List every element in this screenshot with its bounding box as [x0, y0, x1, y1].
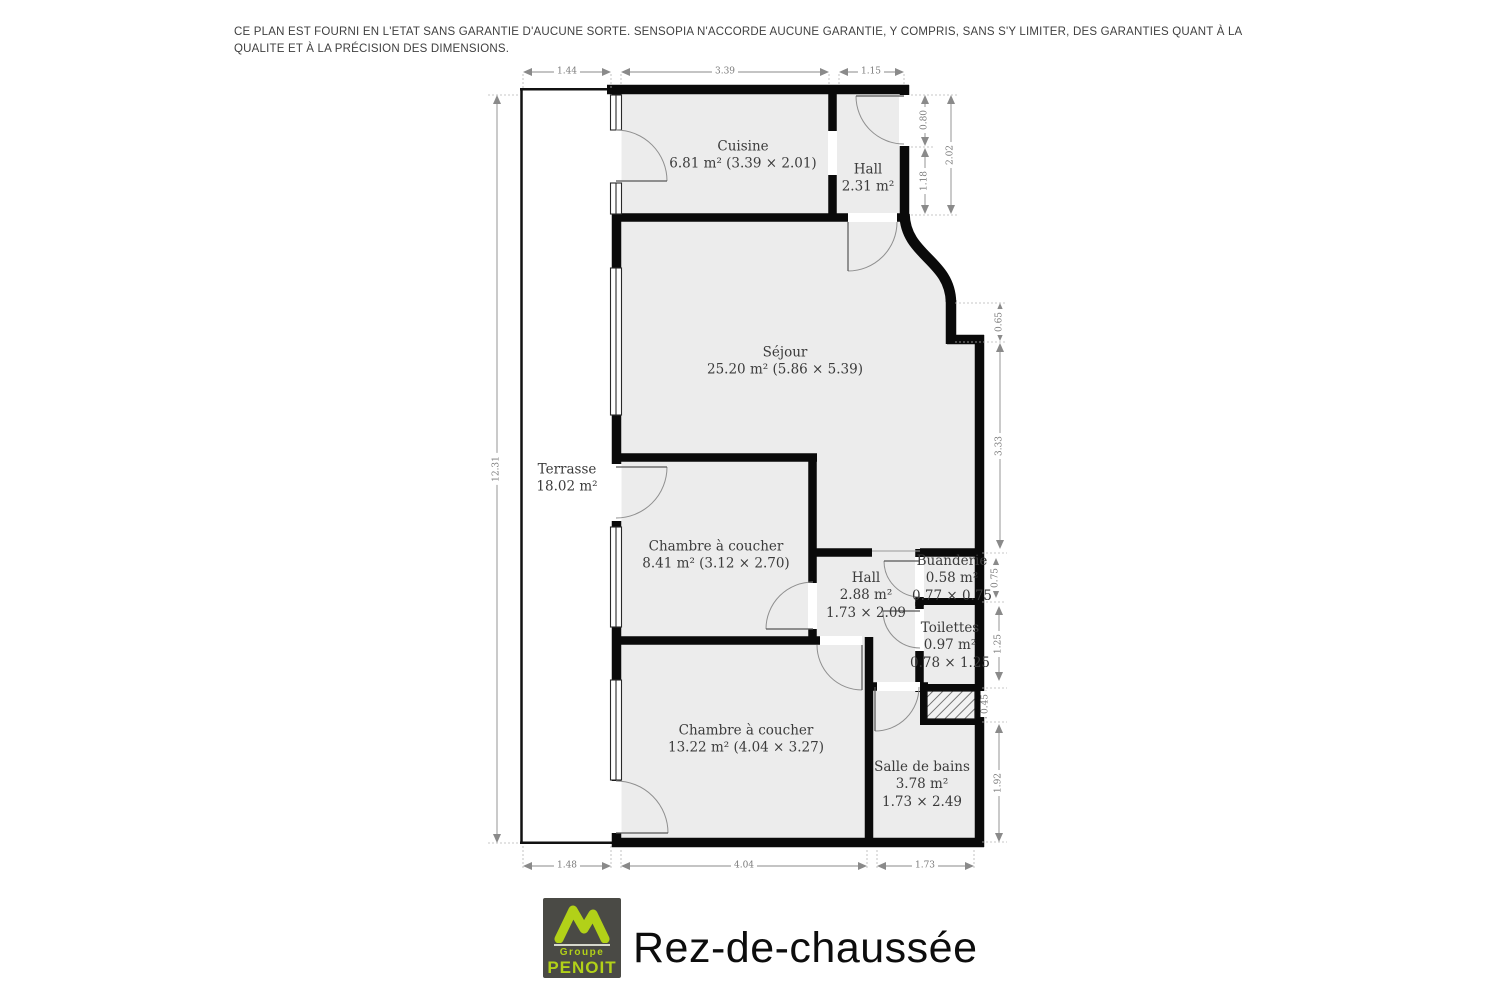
logo-group-text: Groupe — [560, 947, 605, 958]
room-name: Chambre à coucher — [668, 723, 824, 740]
room-name: Terrasse — [536, 462, 597, 479]
room-area: 18.02 m² — [536, 479, 597, 496]
room-label-terrasse: Terrasse 18.02 m² — [536, 462, 597, 497]
room-label-chambre-2: Chambre à coucher 13.22 m² (4.04 × 3.27) — [668, 723, 824, 758]
room-dims: 0.78 × 1.25 — [910, 655, 990, 672]
room-label-salle-de-bains: Salle de bains 3.78 m² 1.73 × 2.49 — [874, 759, 970, 811]
room-area: 0.58 m² — [912, 570, 992, 587]
house-peaks-icon — [552, 903, 612, 943]
room-area: 25.20 m² (5.86 × 5.39) — [707, 362, 863, 379]
room-name: Séjour — [707, 345, 863, 362]
room-area: 2.88 m² — [826, 587, 906, 604]
dim-top-2: 3.39 — [712, 67, 738, 78]
room-label-hall-2: Hall 2.88 m² 1.73 × 2.09 — [826, 570, 906, 622]
dim-top-1: 1.44 — [554, 67, 580, 78]
dim-right-9: 1.92 — [994, 770, 1005, 796]
dim-right-3: 1.18 — [920, 168, 931, 194]
room-name: Toilettes — [910, 620, 990, 637]
logo-divider — [554, 944, 610, 946]
dim-right-5: 3.33 — [995, 433, 1006, 459]
room-label-toilettes: Toilettes 0.97 m² 0.78 × 1.25 — [910, 620, 990, 672]
room-area: 13.22 m² (4.04 × 3.27) — [668, 740, 824, 757]
room-label-hall-entree: Hall 2.31 m² — [842, 162, 895, 197]
room-name: Hall — [826, 570, 906, 587]
dim-right-6: 0.75 — [991, 565, 1002, 591]
room-name: Salle de bains — [874, 759, 970, 776]
floor-title: Rez-de-chaussée — [633, 924, 978, 973]
room-label-buanderie: Buanderie 0.58 m² 0.77 × 0.75 — [912, 553, 992, 605]
room-dims: 1.73 × 2.09 — [826, 605, 906, 622]
dim-left-1: 12.31 — [492, 453, 503, 485]
dim-right-4: 0.65 — [995, 309, 1006, 335]
room-dims: 0.77 × 0.75 — [912, 588, 992, 605]
room-area: 0.97 m² — [910, 637, 990, 654]
room-name: Hall — [842, 162, 895, 179]
room-label-sejour: Séjour 25.20 m² (5.86 × 5.39) — [707, 345, 863, 380]
dim-bottom-2: 4.04 — [731, 861, 757, 872]
shaft-hatch — [927, 691, 975, 719]
room-dims: 1.73 × 2.49 — [874, 794, 970, 811]
room-area: 2.31 m² — [842, 179, 895, 196]
dim-bottom-1: 1.48 — [554, 861, 580, 872]
dim-right-8: 0.45 — [981, 691, 992, 717]
logo-name-text: PENOIT — [547, 958, 616, 977]
room-name: Buanderie — [912, 553, 992, 570]
room-area: 3.78 m² — [874, 776, 970, 793]
dim-right-2: 2.02 — [946, 142, 957, 168]
room-name: Chambre à coucher — [642, 539, 789, 556]
dim-right-7: 1.25 — [994, 631, 1005, 657]
room-label-chambre-1: Chambre à coucher 8.41 m² (3.12 × 2.70) — [642, 539, 789, 574]
room-label-cuisine: Cuisine 6.81 m² (3.39 × 2.01) — [669, 139, 816, 174]
room-area: 8.41 m² (3.12 × 2.70) — [642, 556, 789, 573]
dim-bottom-3: 1.73 — [912, 861, 938, 872]
company-logo: Groupe PENOIT — [543, 898, 621, 978]
dim-top-3: 1.15 — [858, 67, 884, 78]
room-name: Cuisine — [669, 139, 816, 156]
dim-right-1: 0.80 — [920, 107, 931, 133]
room-area: 6.81 m² (3.39 × 2.01) — [669, 156, 816, 173]
